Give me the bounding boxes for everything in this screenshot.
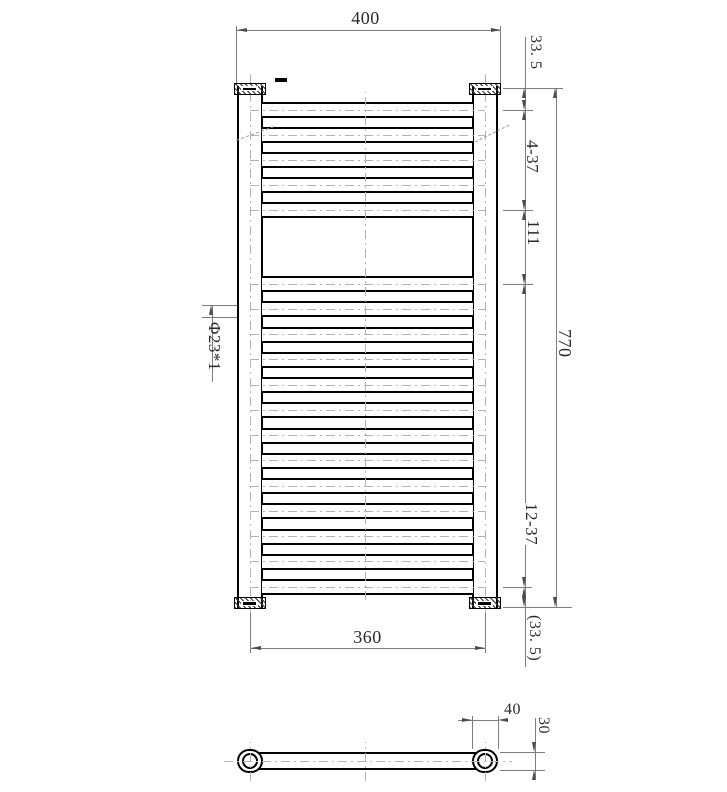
drawing-canvas: 400 770 33. 5 4-37 111 12-37 bbox=[0, 0, 727, 792]
vent-plug-mark bbox=[275, 78, 287, 82]
rung-centerline bbox=[250, 160, 485, 161]
rung-centerline bbox=[250, 460, 485, 461]
bracket-bar bbox=[243, 602, 256, 605]
rung-centerline bbox=[250, 486, 485, 487]
rung-centerline bbox=[250, 410, 485, 411]
rung-centerline bbox=[250, 587, 485, 588]
rung-centerline bbox=[250, 435, 485, 436]
rung-centerline bbox=[250, 334, 485, 335]
rung-centerline bbox=[250, 359, 485, 360]
rung-centerline bbox=[250, 309, 485, 310]
top-view-left-axis bbox=[250, 742, 251, 781]
rung-centerline bbox=[250, 110, 485, 111]
rung-centerline bbox=[250, 561, 485, 562]
left-tube-centerline bbox=[250, 72, 251, 653]
top-view-mid-axis bbox=[365, 742, 366, 781]
dim-label-30: 30 bbox=[535, 717, 551, 734]
top-view-right-axis bbox=[485, 742, 486, 781]
dim-label-400: 400 bbox=[338, 9, 393, 27]
bracket-bottom-left bbox=[234, 597, 266, 609]
dim-label-360: 360 bbox=[340, 628, 395, 646]
rung-centerline bbox=[250, 185, 485, 186]
rung-centerline bbox=[250, 385, 485, 386]
dim-label-4-37: 4-37 bbox=[524, 140, 541, 173]
rung-centerline bbox=[250, 284, 485, 285]
dim-label-770: 770 bbox=[556, 329, 574, 358]
bracket-bar bbox=[478, 88, 491, 91]
dim-label-111: 111 bbox=[525, 220, 542, 246]
rung-centerline bbox=[250, 135, 485, 136]
dim-label-33-5: 33. 5 bbox=[527, 35, 543, 70]
dim-label-40: 40 bbox=[504, 702, 521, 718]
bracket-top-left bbox=[234, 83, 266, 95]
right-tube-centerline bbox=[485, 72, 486, 653]
dim-label-phi23: Φ23*1 bbox=[206, 322, 223, 371]
bracket-top-right bbox=[469, 83, 501, 95]
bracket-bar bbox=[478, 602, 491, 605]
top-view-centerline bbox=[224, 761, 512, 762]
dim-label-33-5-ref: (33. 5) bbox=[526, 615, 542, 661]
rung-centerline bbox=[250, 536, 485, 537]
bracket-bar bbox=[243, 88, 256, 91]
rung-centerline bbox=[250, 210, 485, 211]
mid-axis-centerline bbox=[365, 92, 366, 600]
rung-centerline bbox=[250, 511, 485, 512]
bracket-bottom-right bbox=[469, 597, 501, 609]
dim-label-12-37: 12-37 bbox=[523, 503, 540, 545]
